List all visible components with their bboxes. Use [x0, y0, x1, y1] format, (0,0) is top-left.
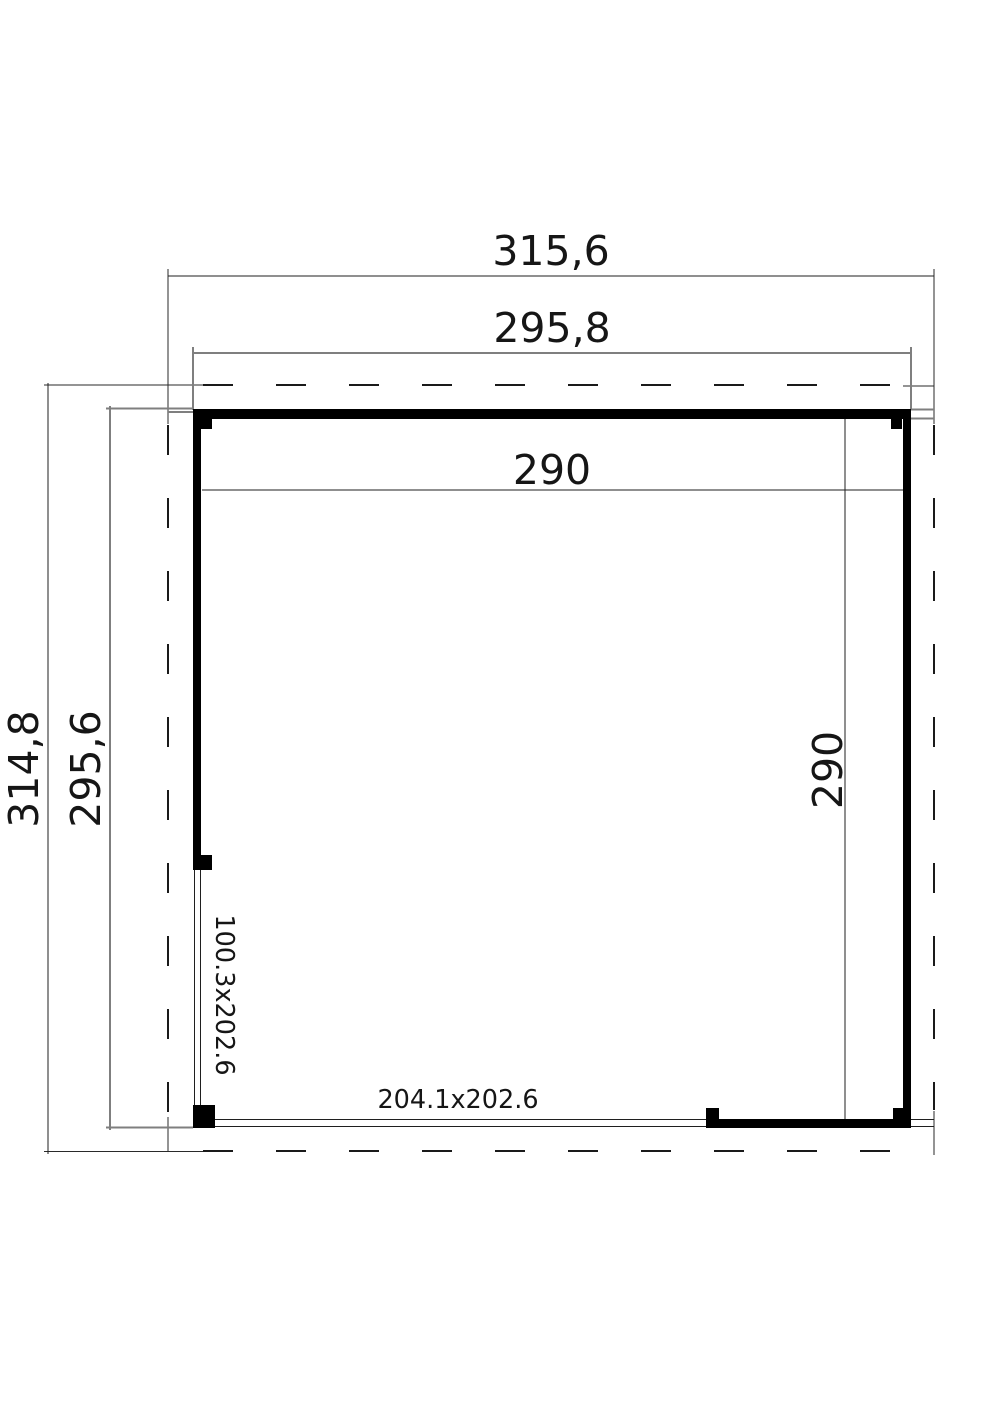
dim-label-roof-width: 315,6 — [492, 227, 609, 275]
wall-bottom — [719, 1119, 911, 1128]
floor-plan-canvas: 315,6 295,8 290 314,8 295,6 290 100.3x20… — [0, 0, 1000, 1415]
wall-right — [903, 409, 911, 1128]
dim-label-wall-depth: 295,6 — [62, 710, 110, 827]
corner-block-bottom-right — [893, 1108, 911, 1128]
corner-block-top-left — [199, 419, 212, 429]
door-jamb-top — [193, 855, 212, 870]
corner-block-top-right — [891, 419, 902, 429]
corner-block-bottom-left — [193, 1105, 215, 1128]
floor-plan-drawing: 315,6 295,8 290 314,8 295,6 290 100.3x20… — [0, 0, 1000, 1415]
dim-label-inner-depth: 290 — [804, 731, 852, 809]
door-opening-label: 100.3x202.6 — [209, 914, 239, 1075]
wall-left — [193, 409, 201, 855]
front-opening-label: 204.1x202.6 — [377, 1085, 538, 1115]
dim-label-wall-width: 295,8 — [493, 304, 610, 352]
wall-top — [193, 409, 911, 419]
dim-label-roof-depth: 314,8 — [0, 710, 48, 827]
front-opening-jamb — [706, 1108, 719, 1128]
dim-label-inner-width: 290 — [513, 446, 591, 494]
